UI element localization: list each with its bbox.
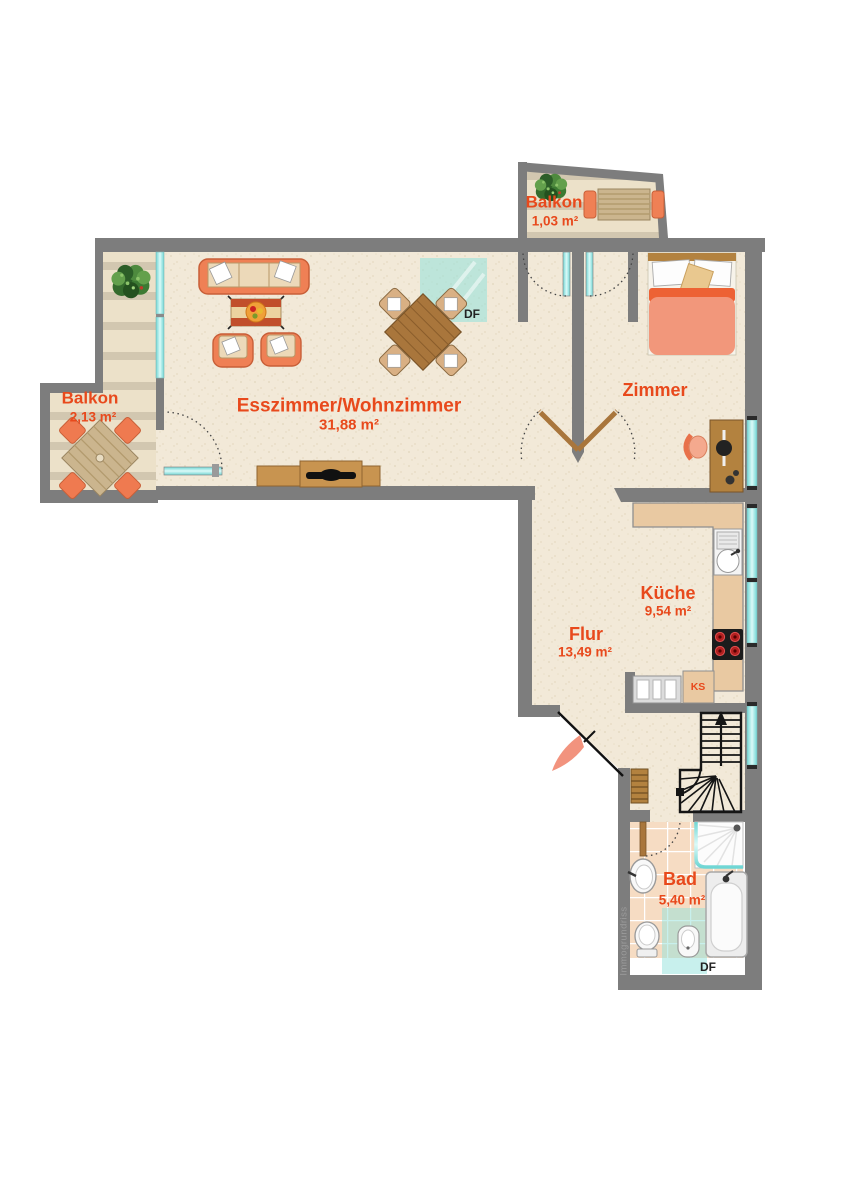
wall-top bbox=[95, 238, 765, 252]
window-living-west-1 bbox=[156, 252, 164, 314]
label-df-living: DF bbox=[464, 308, 480, 320]
topbalcony-table-set bbox=[584, 189, 664, 220]
label-df-bad: DF bbox=[700, 961, 716, 973]
wall-flur-left bbox=[518, 486, 532, 717]
window-stairs-east bbox=[747, 706, 757, 765]
topbalcony-chair-right bbox=[652, 191, 664, 218]
toilet bbox=[635, 922, 659, 957]
armchair-right bbox=[261, 333, 301, 366]
label-balkon-left-area: 2,13 m² bbox=[70, 410, 117, 424]
stove bbox=[712, 629, 743, 660]
label-kueche-name: Küche bbox=[640, 584, 695, 602]
window-zimmer-east bbox=[747, 420, 757, 486]
bathtub bbox=[706, 871, 747, 957]
wall-stub-balconydoor-left bbox=[518, 252, 528, 322]
wall-living-bottom bbox=[156, 486, 535, 500]
topbalcony-chair-left bbox=[584, 191, 596, 218]
label-ks: KS bbox=[691, 682, 706, 693]
bidet bbox=[678, 926, 699, 957]
window-kueche-east-2 bbox=[747, 582, 757, 643]
wall-stub-balconydoor-right bbox=[628, 252, 638, 322]
label-balkon-top-name: Balkon bbox=[526, 194, 583, 211]
wall-strip-left bbox=[95, 238, 103, 392]
floor-plan-canvas: Balkon 1,03 m² Zimmer Esszimmer/Wohnzimm… bbox=[0, 0, 848, 1200]
stairs-newel bbox=[676, 788, 684, 796]
bathtub-faucet bbox=[723, 876, 730, 883]
wall-flur-bottom-stub bbox=[518, 705, 560, 717]
floor-stair-landing bbox=[618, 713, 745, 822]
entrance-arrow bbox=[552, 735, 584, 771]
door-topbalcony-right bbox=[586, 252, 593, 296]
label-wohnzimmer-name: Esszimmer/Wohnzimmer bbox=[237, 397, 462, 416]
armchair-left bbox=[213, 334, 253, 367]
label-flur-area: 13,49 m² bbox=[558, 645, 612, 659]
kitchen-sink bbox=[714, 529, 742, 575]
floor-plan-drawing bbox=[0, 0, 848, 1200]
sofa bbox=[199, 259, 309, 294]
coffee-table bbox=[228, 296, 284, 329]
kitchen-cabinet bbox=[633, 676, 681, 703]
window-living-west-2 bbox=[156, 317, 164, 378]
label-wohnzimmer-area: 31,88 m² bbox=[319, 418, 379, 433]
label-zimmer-name: Zimmer bbox=[622, 381, 687, 399]
watermark-immogrundriss: Immogrundriss bbox=[619, 906, 630, 975]
bed bbox=[648, 253, 736, 355]
shower-head bbox=[734, 825, 741, 832]
fruit-bowl bbox=[246, 302, 266, 322]
bed-blanket bbox=[649, 297, 735, 355]
desk-chair bbox=[686, 435, 707, 459]
door-balcony-west-handle bbox=[212, 464, 219, 477]
label-bad-area: 5,40 m² bbox=[659, 893, 706, 907]
desk bbox=[710, 420, 743, 492]
label-flur-name: Flur bbox=[569, 625, 603, 643]
wall-glass-segment bbox=[156, 378, 164, 430]
wardrobe bbox=[631, 769, 648, 803]
label-balkon-left-name: Balkon bbox=[62, 390, 119, 407]
shower bbox=[695, 822, 743, 868]
door-bad bbox=[640, 822, 646, 856]
wall-living-zimmer-divider bbox=[572, 252, 584, 452]
bed-headboard bbox=[648, 253, 736, 261]
wall-bad-bottom bbox=[618, 975, 762, 990]
window-kueche-east-1 bbox=[747, 508, 757, 578]
label-balkon-top-area: 1,03 m² bbox=[532, 214, 579, 228]
wall-kueche-bottom bbox=[625, 703, 745, 713]
label-kueche-area: 9,54 m² bbox=[645, 604, 692, 618]
door-topbalcony-left bbox=[563, 252, 570, 296]
wall-balcony-left bbox=[40, 383, 50, 503]
label-bad-name: Bad bbox=[663, 870, 697, 888]
